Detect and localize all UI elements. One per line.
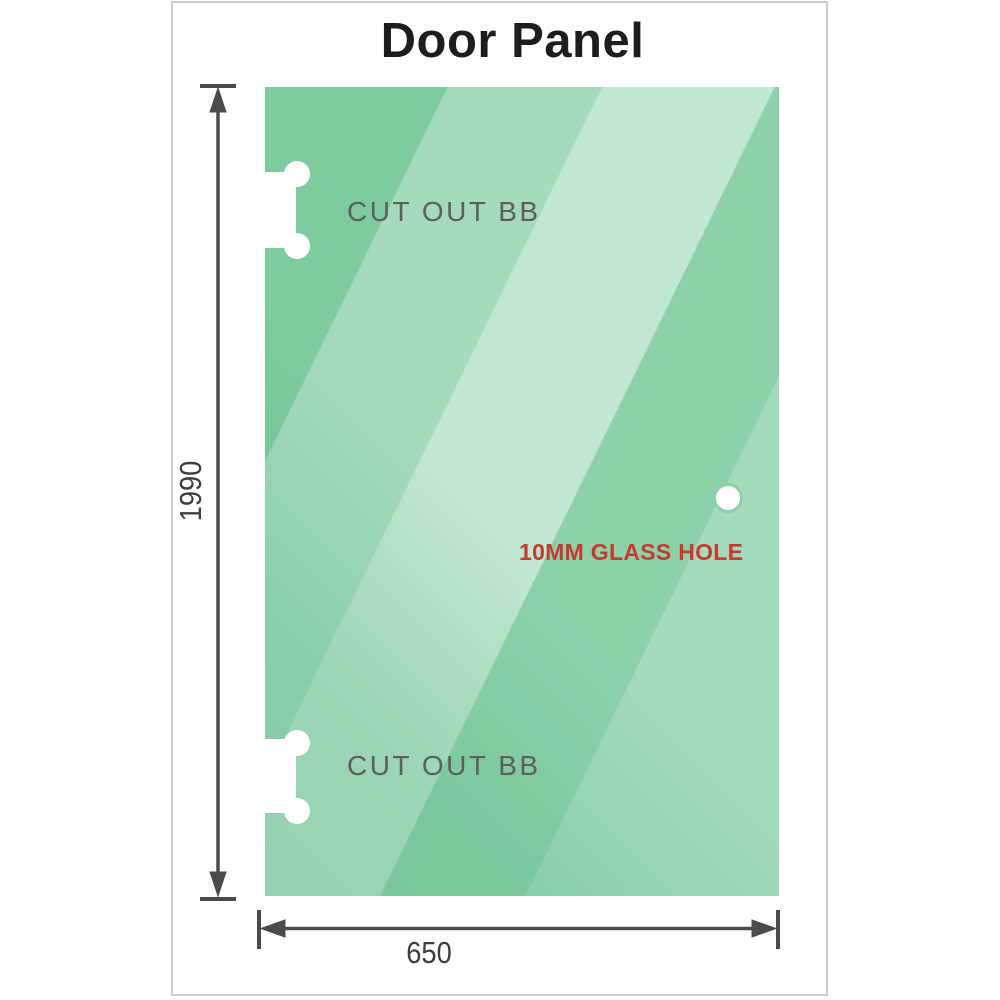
glass-hole bbox=[713, 483, 743, 513]
cutout-bb-top-label: CUT OUT BB bbox=[347, 196, 541, 228]
cutout-bb-top-knob-upper bbox=[284, 161, 310, 187]
height-dim-arrow-up-icon bbox=[210, 88, 226, 112]
cutout-bb-bottom-knob-upper bbox=[284, 730, 310, 756]
door-panel-glass: CUT OUT BB CUT OUT BB 10MM GLASS HOLE bbox=[265, 87, 779, 896]
cutout-bb-bottom-label: CUT OUT BB bbox=[347, 750, 541, 782]
diagram-card: Door Panel CUT OUT BB CUT OUT BB 10MM GL… bbox=[171, 1, 828, 996]
height-dimension-value: 1990 bbox=[175, 456, 207, 526]
diagram-canvas: Door Panel CUT OUT BB CUT OUT BB 10MM GL… bbox=[0, 0, 1000, 1000]
width-dim-arrow-left-icon bbox=[261, 920, 285, 937]
glass-hole-label: 10MM GLASS HOLE bbox=[519, 539, 743, 566]
height-dim-arrow-down-icon bbox=[210, 872, 226, 896]
width-dim-arrow-right-icon bbox=[752, 920, 776, 937]
cutout-bb-top-knob-lower bbox=[284, 233, 310, 259]
width-dimension-line bbox=[259, 910, 778, 949]
page-title: Door Panel bbox=[173, 13, 826, 69]
width-dimension-value: 650 bbox=[376, 936, 482, 970]
cutout-bb-bottom-knob-lower bbox=[284, 798, 310, 824]
